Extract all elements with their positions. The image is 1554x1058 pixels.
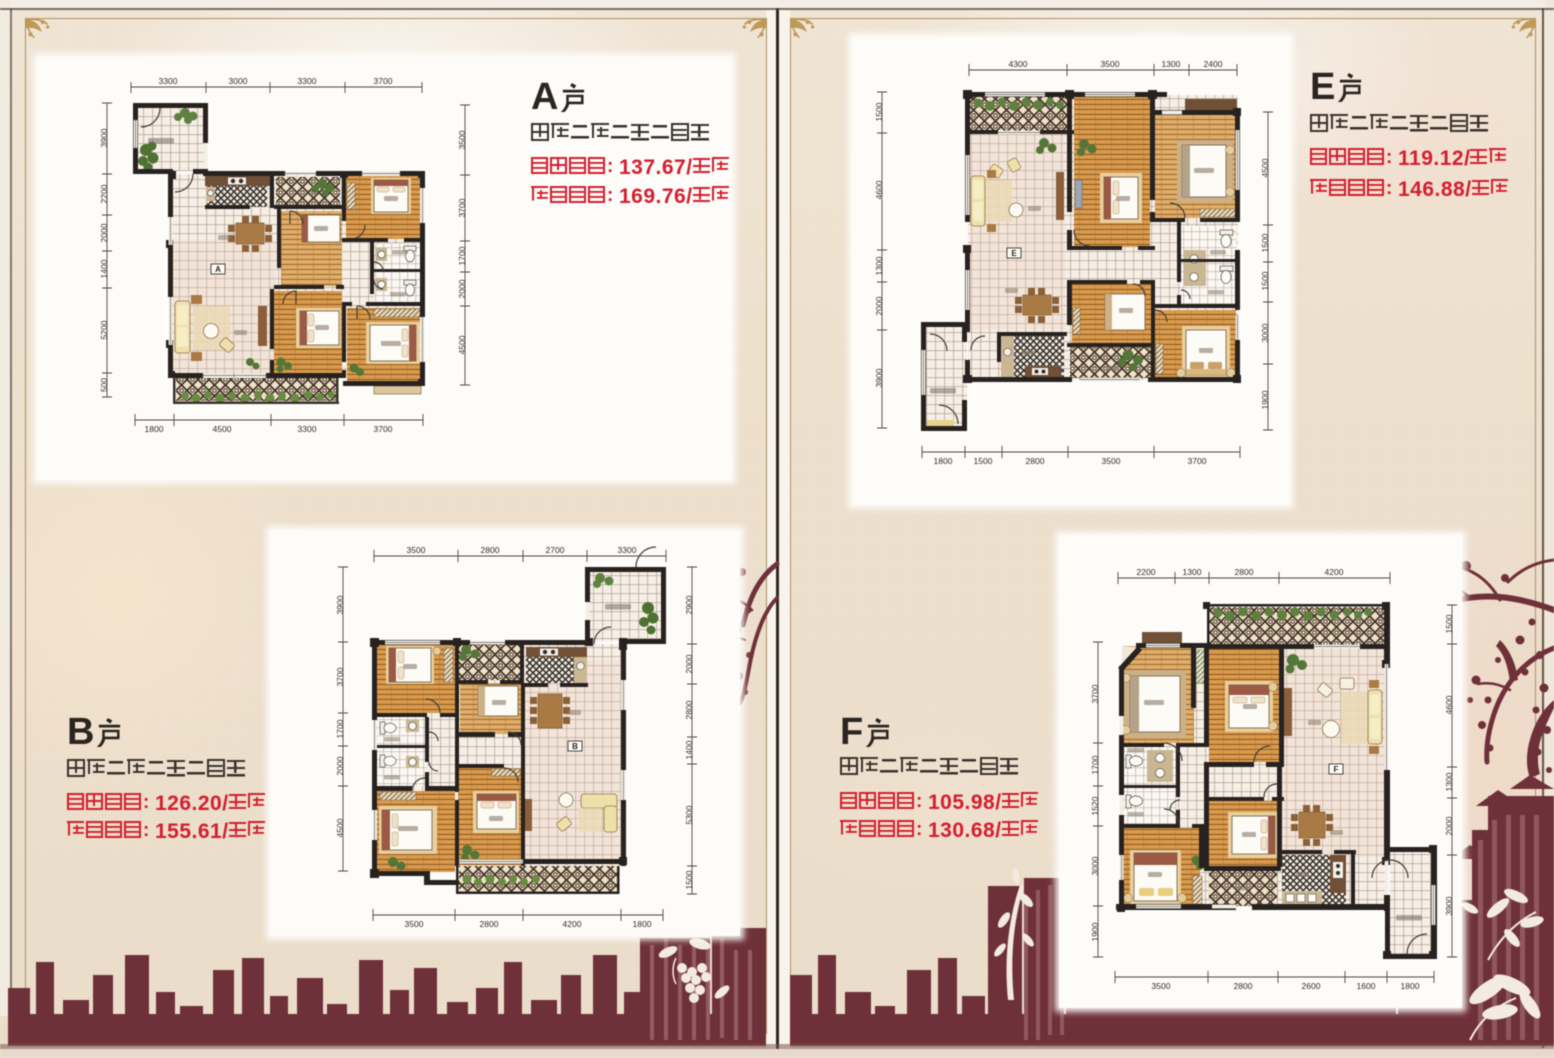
svg-text:4600: 4600 [874, 180, 884, 199]
svg-text:3900: 3900 [874, 368, 884, 387]
svg-text:2000: 2000 [100, 223, 109, 242]
svg-text:1700: 1700 [335, 719, 345, 738]
svg-text:1300: 1300 [1183, 567, 1202, 577]
svg-text:B: B [572, 742, 578, 751]
svg-text:3300: 3300 [298, 76, 317, 86]
svg-text:4600: 4600 [1444, 695, 1454, 714]
svg-text:3700: 3700 [1188, 456, 1207, 465]
svg-text:1800: 1800 [934, 456, 953, 465]
svg-text:3000: 3000 [1260, 323, 1270, 342]
svg-text:2200: 2200 [1137, 567, 1156, 577]
svg-text:500: 500 [100, 378, 109, 392]
svg-text:3500: 3500 [405, 919, 424, 929]
svg-text:3300: 3300 [298, 424, 317, 434]
svg-text:2000: 2000 [684, 654, 694, 673]
svg-text:4500: 4500 [1260, 158, 1270, 177]
svg-text:3500: 3500 [1152, 981, 1171, 991]
svg-text:1300: 1300 [874, 256, 884, 275]
svg-text:3700: 3700 [374, 76, 393, 86]
svg-text:1800: 1800 [633, 919, 652, 929]
svg-text:3300: 3300 [159, 76, 178, 86]
svg-text:1700: 1700 [1090, 755, 1100, 774]
svg-text:3900: 3900 [335, 595, 345, 614]
svg-text:3500: 3500 [407, 545, 426, 555]
svg-text:2600: 2600 [1302, 981, 1321, 991]
svg-text:3000: 3000 [1090, 856, 1100, 875]
svg-text:2000: 2000 [457, 279, 467, 298]
svg-text:2000: 2000 [335, 756, 345, 775]
svg-text:1700: 1700 [457, 246, 467, 265]
svg-text:2800: 2800 [481, 545, 500, 555]
svg-text:1800: 1800 [145, 424, 164, 434]
svg-text:1900: 1900 [1090, 922, 1100, 941]
svg-text:2800: 2800 [1234, 981, 1253, 991]
svg-text:1520: 1520 [1090, 796, 1100, 815]
svg-text:3700: 3700 [457, 198, 467, 217]
svg-text:4300: 4300 [1009, 59, 1028, 69]
svg-text:F: F [1334, 765, 1339, 774]
svg-text:3900: 3900 [100, 128, 109, 147]
svg-text:2000: 2000 [874, 296, 884, 315]
svg-text:3700: 3700 [335, 667, 345, 686]
svg-text:1500: 1500 [974, 456, 993, 465]
svg-text:3000: 3000 [229, 76, 248, 86]
svg-text:2200: 2200 [100, 184, 109, 203]
svg-text:2800: 2800 [684, 700, 694, 719]
svg-text:3500: 3500 [457, 130, 467, 149]
svg-text:1600: 1600 [1357, 981, 1376, 991]
svg-text:1300: 1300 [1444, 772, 1454, 791]
svg-text:3900: 3900 [1444, 896, 1454, 915]
svg-text:4200: 4200 [563, 919, 582, 929]
svg-text:5300: 5300 [684, 805, 694, 824]
svg-text:3300: 3300 [618, 545, 637, 555]
svg-text:2700: 2700 [546, 545, 565, 555]
svg-text:2800: 2800 [1026, 456, 1045, 465]
svg-text:1500: 1500 [874, 102, 884, 121]
svg-text:4500: 4500 [213, 424, 232, 434]
svg-text:2800: 2800 [1235, 567, 1254, 577]
svg-text:4200: 4200 [1325, 567, 1344, 577]
svg-text:4500: 4500 [457, 335, 467, 354]
svg-text:1500: 1500 [1260, 271, 1270, 290]
svg-text:3500: 3500 [1101, 59, 1120, 69]
svg-text:1500: 1500 [1444, 614, 1454, 633]
svg-text:2900: 2900 [684, 595, 694, 614]
svg-text:2400: 2400 [1204, 59, 1223, 69]
svg-text:1400: 1400 [684, 740, 694, 759]
svg-text:3500: 3500 [1102, 456, 1121, 465]
svg-text:5200: 5200 [100, 320, 109, 339]
svg-text:2800: 2800 [480, 919, 499, 929]
svg-text:3700: 3700 [1090, 684, 1100, 703]
svg-text:3700: 3700 [374, 424, 393, 434]
svg-text:E: E [1011, 249, 1017, 258]
svg-text:A: A [215, 265, 221, 274]
svg-text:1900: 1900 [1260, 390, 1270, 409]
svg-text:4500: 4500 [335, 818, 345, 837]
svg-text:1500: 1500 [684, 870, 694, 889]
svg-text:1300: 1300 [1162, 59, 1181, 69]
svg-text:1500: 1500 [1260, 233, 1270, 252]
svg-text:1800: 1800 [1401, 981, 1420, 991]
svg-text:1400: 1400 [100, 259, 109, 278]
svg-text:2000: 2000 [1444, 816, 1454, 835]
